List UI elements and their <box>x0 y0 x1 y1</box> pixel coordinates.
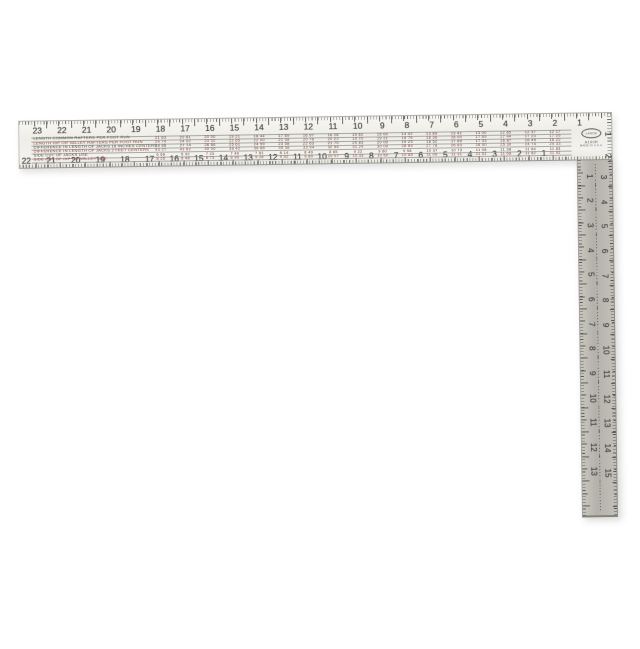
half-tick <box>579 247 584 248</box>
scale-number: 14 <box>603 444 611 453</box>
half-tick <box>614 469 618 470</box>
inch-tick <box>219 119 220 126</box>
inch-tick <box>578 185 585 186</box>
half-tick <box>245 161 246 166</box>
scale-number: 9 <box>380 121 385 130</box>
scale-number: 7 <box>600 273 608 278</box>
rafter-table-cell: 8 73 <box>199 155 221 159</box>
half-tick <box>580 345 585 346</box>
half-tick <box>305 118 306 123</box>
scale-number: 3 <box>585 223 593 228</box>
inch-tick <box>307 159 308 166</box>
half-tick <box>613 420 618 421</box>
inch-tick <box>134 161 135 168</box>
half-tick <box>83 121 84 126</box>
rafter-table-cell: 8 48 <box>175 156 197 160</box>
scale-number: 2 <box>552 118 557 127</box>
inch-tick <box>109 161 110 168</box>
inch-tick <box>609 309 616 310</box>
half-tick <box>551 114 552 119</box>
scale-number: 20 <box>106 125 116 134</box>
brand-logo: LANCE <box>581 128 601 138</box>
half-tick <box>34 122 35 127</box>
scale-number: 8 <box>587 346 595 351</box>
half-tick <box>393 159 394 164</box>
inch-tick <box>60 162 61 169</box>
scale-number: 18 <box>156 124 166 133</box>
half-tick <box>442 159 443 164</box>
scale-number: 11 <box>329 122 338 131</box>
scale-number: 11 <box>588 418 596 426</box>
scale-number: 15 <box>230 123 240 132</box>
half-tick <box>516 157 517 162</box>
inch-tick <box>430 157 431 164</box>
inch-tick <box>612 506 618 507</box>
half-tick <box>220 162 221 167</box>
half-tick <box>613 395 618 396</box>
scale-number: 5 <box>586 272 594 277</box>
inch-tick <box>610 334 617 335</box>
scale-number: 16 <box>205 123 215 132</box>
scale-number: 12 <box>588 443 596 452</box>
inch-tick <box>611 432 618 433</box>
scale-number: 11 <box>602 370 610 378</box>
scale-number: 23 <box>32 126 42 135</box>
inch-tick <box>71 121 72 128</box>
inch-tick <box>194 119 195 126</box>
scale-number: 13 <box>279 122 289 131</box>
scale-number: 14 <box>254 123 264 132</box>
inch-tick <box>35 163 36 169</box>
inch-tick <box>608 211 615 212</box>
tongue-center-dotted-line <box>595 164 601 510</box>
half-tick <box>294 161 295 166</box>
half-tick <box>612 371 617 372</box>
scale-number: 22 <box>57 126 67 135</box>
scale-number: 1 <box>603 131 611 136</box>
inch-tick <box>243 118 244 125</box>
inch-tick <box>367 117 368 124</box>
inch-tick <box>169 120 170 127</box>
scale-number: 4 <box>599 199 607 204</box>
inch-tick <box>610 358 617 359</box>
origin-text: MADE IN U.S.A. <box>571 144 611 148</box>
inch-tick <box>612 482 618 483</box>
inch-tick <box>293 118 294 125</box>
half-tick <box>182 119 183 124</box>
half-tick <box>582 444 587 445</box>
inch-tick <box>580 333 587 334</box>
half-tick <box>256 118 257 123</box>
inch-tick <box>578 210 585 211</box>
rafter-table-cell: 8 99 <box>224 155 246 159</box>
half-tick <box>582 469 587 470</box>
inch-tick <box>454 156 455 163</box>
scale-number: 2 <box>585 198 593 203</box>
rafter-table-cell: 10 85 <box>396 153 418 157</box>
scale-number: 3 <box>528 119 533 128</box>
half-tick <box>583 493 588 494</box>
half-tick <box>206 119 207 124</box>
inch-tick <box>607 161 614 162</box>
inch-tick <box>145 120 146 127</box>
inch-tick <box>331 158 332 165</box>
inch-tick <box>580 308 587 309</box>
inch-tick <box>528 155 529 162</box>
rafter-table-cell: 11 82 <box>520 151 542 155</box>
inch-tick <box>159 161 160 168</box>
half-tick <box>319 160 320 165</box>
rafter-table-cell: 11 51 <box>470 151 492 155</box>
half-tick <box>578 197 583 198</box>
inch-tick <box>582 481 589 482</box>
inch-tick <box>582 432 589 433</box>
half-tick <box>611 248 616 249</box>
half-tick <box>58 121 59 126</box>
half-tick <box>611 272 616 273</box>
half-tick <box>502 115 503 120</box>
brand-logo-text: LANCE <box>586 131 598 135</box>
rafter-table-cell: 8 25 <box>150 156 172 160</box>
half-tick <box>157 120 158 125</box>
half-tick <box>368 160 369 165</box>
half-tick <box>48 164 49 168</box>
inch-tick <box>405 157 406 164</box>
scale-number: 21 <box>82 125 92 134</box>
scale-number: 8 <box>405 121 410 130</box>
rafter-table-cell: 11 31 <box>446 152 468 156</box>
half-tick <box>330 117 331 122</box>
scale-number: 9 <box>601 323 609 328</box>
inch-tick <box>581 382 588 383</box>
rafter-table-cell: 9 26 <box>248 155 270 159</box>
inch-tick <box>611 383 618 384</box>
inch-tick <box>581 358 588 359</box>
half-tick <box>527 114 528 119</box>
half-tick <box>467 158 468 163</box>
half-tick <box>280 118 281 123</box>
half-tick <box>565 157 566 162</box>
half-tick <box>428 116 429 121</box>
half-tick <box>379 116 380 121</box>
half-tick <box>610 198 615 199</box>
inch-tick <box>233 160 234 167</box>
inch-tick <box>479 156 480 163</box>
half-tick <box>612 346 617 347</box>
scale-number: 10 <box>588 393 596 402</box>
scale-number: 10 <box>601 345 609 354</box>
inch-tick <box>282 159 283 166</box>
tongue: 123456789101112133456789101112131415 <box>577 160 618 517</box>
inch-tick <box>257 159 258 166</box>
half-tick <box>582 419 587 420</box>
half-tick <box>578 173 583 174</box>
rafter-table-cell: 10 07 <box>322 154 344 158</box>
rafter-table-cell: 9 52 <box>273 154 295 158</box>
inch-tick <box>579 234 586 235</box>
half-tick <box>579 271 584 272</box>
rafter-table-cell: 10 60 <box>372 153 394 157</box>
inch-tick <box>317 117 318 124</box>
half-tick <box>108 120 109 125</box>
inch-tick <box>440 116 441 123</box>
scale-number: 15 <box>603 468 611 477</box>
half-tick <box>576 114 577 119</box>
inch-tick <box>539 114 540 121</box>
scale-number: 12 <box>602 394 610 403</box>
half-tick <box>354 117 355 122</box>
inch-tick <box>609 260 616 261</box>
inch-tick <box>46 121 47 128</box>
inch-tick <box>183 160 184 167</box>
scale-number: 1 <box>584 174 592 179</box>
inch-tick <box>268 118 269 125</box>
half-tick <box>580 321 585 322</box>
tongue-inner-minor-ticks <box>578 160 587 515</box>
inch-tick <box>120 120 121 127</box>
half-tick <box>231 119 232 124</box>
half-tick <box>491 158 492 163</box>
half-tick <box>171 163 172 168</box>
half-tick <box>97 164 98 169</box>
scale-number: 9 <box>587 371 595 376</box>
inch-tick <box>588 113 589 120</box>
inch-tick <box>85 162 86 169</box>
half-tick <box>453 115 454 120</box>
half-tick <box>132 120 133 125</box>
scale-number: 12 <box>304 122 314 131</box>
scale-number: 13 <box>603 419 611 428</box>
inch-tick <box>391 116 392 123</box>
inch-tick <box>608 235 615 236</box>
scale-number: 6 <box>600 249 608 254</box>
half-tick <box>270 161 271 166</box>
half-tick <box>581 395 586 396</box>
scale-number: 5 <box>600 224 608 229</box>
scale-number: 6 <box>454 120 459 129</box>
inch-tick <box>583 505 590 506</box>
rafter-table-cell: 11 09 <box>421 152 443 156</box>
half-tick <box>343 160 344 165</box>
scale-number: 6 <box>586 297 594 302</box>
inch-tick <box>95 121 96 128</box>
scale-number: 2 <box>603 154 611 159</box>
inch-tick <box>356 158 357 165</box>
rafter-table-cell: 11 68 <box>495 151 517 155</box>
half-tick <box>601 113 602 118</box>
scale-number: 4 <box>503 119 508 128</box>
half-tick <box>611 297 616 298</box>
inch-tick <box>612 457 618 458</box>
inch-tick <box>609 285 616 286</box>
rafter-table-cell: 10 33 <box>347 153 369 157</box>
half-tick <box>417 159 418 164</box>
inch-tick <box>380 157 381 164</box>
scale-number: 17 <box>180 124 190 133</box>
half-tick <box>72 164 73 169</box>
half-tick <box>122 163 123 168</box>
scale-number: 4 <box>586 248 594 253</box>
inch-tick <box>504 156 505 163</box>
inch-tick <box>582 456 589 457</box>
inch-tick <box>416 116 417 123</box>
scale-number: 13 <box>589 467 597 476</box>
half-tick <box>614 494 618 495</box>
scale-number: 7 <box>587 322 595 327</box>
photo-background: LANCE A100R MADE IN U.S.A. 2322212019181… <box>0 0 640 640</box>
inch-tick <box>342 117 343 124</box>
half-tick <box>23 165 24 169</box>
half-tick <box>579 222 584 223</box>
rafter-table-cell: 11 92 <box>544 150 566 154</box>
half-tick <box>609 174 614 175</box>
half-tick <box>612 321 617 322</box>
inch-tick <box>490 115 491 122</box>
scale-number: 19 <box>131 124 141 133</box>
half-tick <box>580 296 585 297</box>
half-tick <box>404 116 405 121</box>
inch-tick <box>553 155 554 162</box>
half-tick <box>610 223 615 224</box>
scale-number: 1 <box>577 118 582 127</box>
scale-number: 7 <box>429 120 434 129</box>
inch-tick <box>580 284 587 285</box>
inch-tick <box>579 259 586 260</box>
scale-number: 10 <box>353 121 363 130</box>
inch-tick <box>608 186 615 187</box>
blade: LANCE A100R MADE IN U.S.A. 2322212019181… <box>18 112 613 169</box>
half-tick <box>581 370 586 371</box>
half-tick <box>146 163 147 168</box>
half-tick <box>477 115 478 120</box>
inch-tick <box>611 408 618 409</box>
inch-tick <box>465 115 466 122</box>
scale-number: 5 <box>478 119 483 128</box>
inch-tick <box>208 160 209 167</box>
scale-number: 3 <box>599 175 607 180</box>
half-tick <box>541 157 542 162</box>
scale-number: 8 <box>601 298 609 303</box>
inch-tick <box>564 114 565 121</box>
rafter-table-cell: 9 80 <box>298 154 320 158</box>
inch-tick <box>514 114 515 121</box>
framing-square: LANCE A100R MADE IN U.S.A. 2322212019181… <box>0 0 640 649</box>
half-tick <box>613 445 618 446</box>
tongue-outer-minor-ticks <box>608 160 617 515</box>
half-tick <box>196 162 197 167</box>
inch-tick <box>581 407 588 408</box>
